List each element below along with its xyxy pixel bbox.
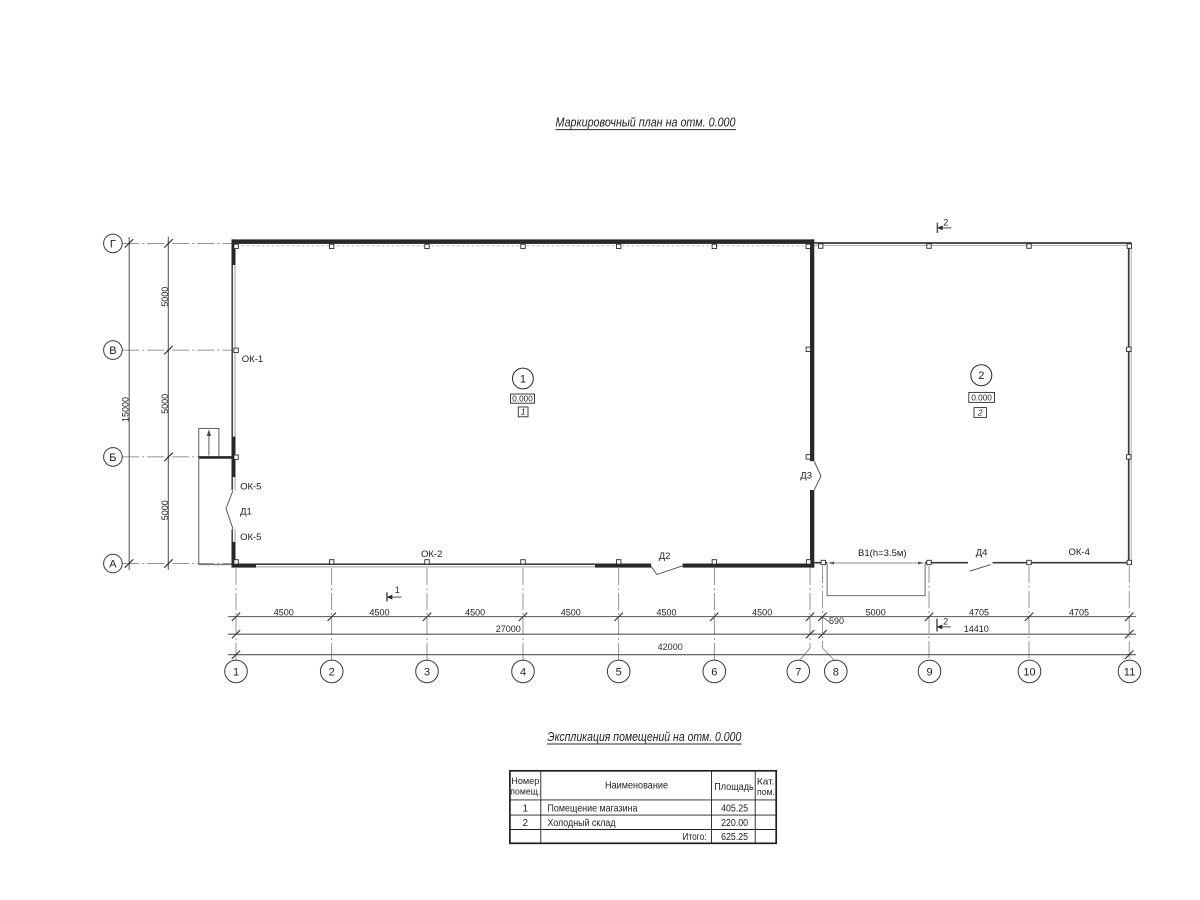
svg-text:1: 1 bbox=[523, 804, 529, 815]
svg-text:Помещение магазина: Помещение магазина bbox=[548, 804, 638, 815]
svg-text:Наименование: Наименование bbox=[605, 781, 668, 792]
svg-text:11: 11 bbox=[1124, 666, 1135, 678]
svg-text:4500: 4500 bbox=[561, 607, 581, 617]
svg-text:14410: 14410 bbox=[964, 624, 989, 634]
svg-text:5000: 5000 bbox=[160, 287, 170, 307]
svg-text:4: 4 bbox=[520, 666, 526, 678]
svg-text:Номер: Номер bbox=[511, 776, 539, 787]
svg-text:5000: 5000 bbox=[160, 394, 170, 414]
svg-text:ОК-4: ОК-4 bbox=[1069, 547, 1090, 558]
svg-text:В1(h=3.5м): В1(h=3.5м) bbox=[858, 548, 907, 559]
svg-text:Холодный склад: Холодный склад bbox=[548, 818, 616, 829]
svg-text:27000: 27000 bbox=[496, 624, 521, 634]
svg-text:4500: 4500 bbox=[656, 607, 676, 617]
svg-text:4705: 4705 bbox=[1069, 607, 1089, 617]
svg-text:2: 2 bbox=[523, 818, 529, 829]
svg-text:405.25: 405.25 bbox=[721, 804, 748, 815]
svg-text:пом.: пом. bbox=[757, 787, 775, 798]
svg-text:6: 6 bbox=[711, 666, 717, 678]
svg-text:2: 2 bbox=[943, 217, 948, 227]
svg-text:2: 2 bbox=[329, 666, 335, 678]
svg-text:ОК-1: ОК-1 bbox=[242, 354, 263, 365]
svg-text:1: 1 bbox=[521, 407, 526, 417]
svg-text:Площадь: Площадь bbox=[714, 782, 754, 793]
svg-text:2: 2 bbox=[977, 407, 983, 417]
svg-text:ОК-2: ОК-2 bbox=[421, 549, 442, 560]
svg-text:Итого:: Итого: bbox=[683, 832, 707, 843]
svg-text:10: 10 bbox=[1023, 666, 1035, 678]
svg-text:4705: 4705 bbox=[969, 607, 989, 617]
svg-text:Г: Г bbox=[110, 238, 116, 250]
svg-text:1: 1 bbox=[520, 373, 526, 385]
svg-text:4500: 4500 bbox=[752, 607, 772, 617]
svg-text:0.000: 0.000 bbox=[512, 393, 533, 403]
svg-text:625.25: 625.25 bbox=[721, 832, 748, 843]
svg-text:15000: 15000 bbox=[120, 397, 130, 422]
svg-text:3: 3 bbox=[424, 666, 430, 678]
svg-text:42000: 42000 bbox=[658, 642, 683, 652]
svg-text:2: 2 bbox=[943, 616, 948, 626]
svg-text:5: 5 bbox=[616, 666, 622, 678]
svg-text:Маркировочный план на отм. 0.: Маркировочный план на отм. 0.000 bbox=[556, 115, 737, 130]
svg-text:0.000: 0.000 bbox=[971, 392, 992, 402]
svg-text:9: 9 bbox=[926, 666, 932, 678]
svg-text:5000: 5000 bbox=[866, 607, 886, 617]
svg-text:Д3: Д3 bbox=[800, 470, 812, 481]
svg-text:А: А bbox=[109, 558, 117, 570]
svg-text:4500: 4500 bbox=[465, 607, 485, 617]
svg-text:1: 1 bbox=[395, 585, 400, 595]
svg-text:1: 1 bbox=[233, 666, 239, 678]
svg-text:590: 590 bbox=[829, 616, 844, 626]
svg-text:Б: Б bbox=[109, 452, 116, 464]
svg-text:4500: 4500 bbox=[369, 607, 389, 617]
svg-text:8: 8 bbox=[833, 666, 839, 678]
svg-text:Экспликация помещений на отм.: Экспликация помещений на отм. 0.000 bbox=[547, 730, 741, 744]
svg-text:помещ.: помещ. bbox=[510, 787, 540, 798]
svg-text:7: 7 bbox=[795, 666, 801, 678]
svg-text:4500: 4500 bbox=[274, 607, 294, 617]
svg-text:5000: 5000 bbox=[160, 500, 170, 520]
svg-text:Д2: Д2 bbox=[659, 551, 671, 562]
svg-text:ОК-5: ОК-5 bbox=[240, 482, 261, 493]
svg-text:Д4: Д4 bbox=[976, 548, 988, 559]
svg-text:ОК-5: ОК-5 bbox=[240, 532, 261, 543]
svg-text:2: 2 bbox=[978, 370, 984, 382]
svg-text:Д1: Д1 bbox=[240, 506, 252, 517]
svg-text:В: В bbox=[109, 345, 116, 357]
svg-text:220.00: 220.00 bbox=[721, 818, 748, 829]
